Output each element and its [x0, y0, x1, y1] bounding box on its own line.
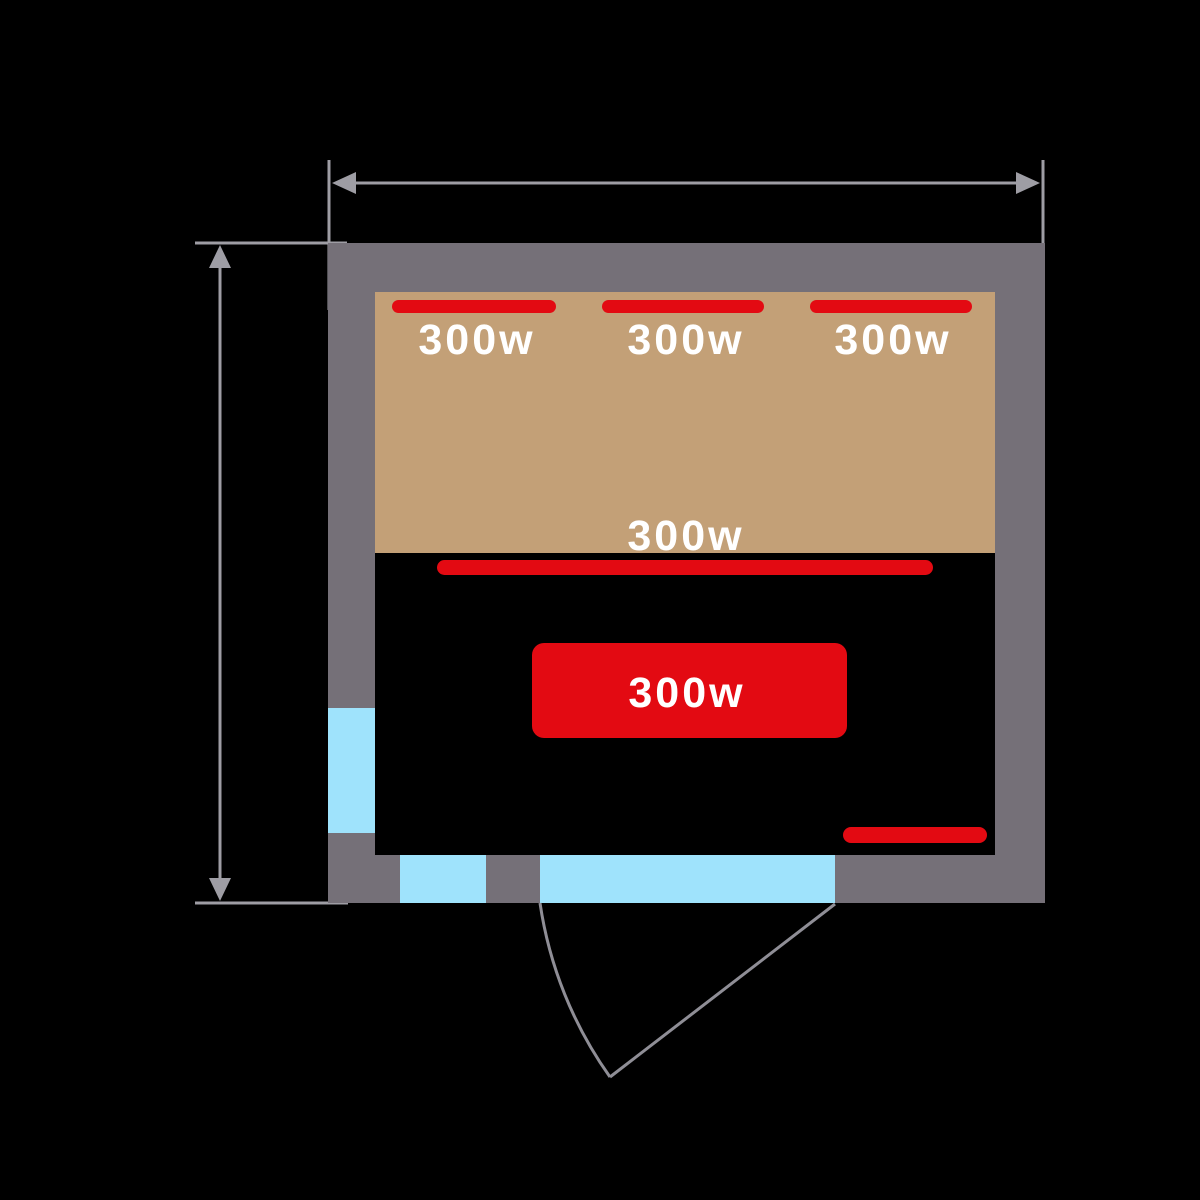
- glass-door: [540, 855, 835, 903]
- height-arrowhead-bottom-icon: [209, 878, 231, 901]
- bench-front-heater-bar: [437, 560, 933, 575]
- rear-heater-bar-2: [602, 300, 764, 313]
- wall-bottom-mid-segment: [486, 855, 540, 903]
- sauna-floorplan-diagram: 300w 300w 300w 300w 300w: [0, 0, 1200, 1200]
- floorplan-canvas: 300w 300w 300w 300w 300w: [0, 0, 1200, 1200]
- wall-top: [328, 243, 1045, 292]
- wall-bottom-right-segment: [835, 855, 1045, 903]
- wall-right: [995, 243, 1045, 903]
- wall-left-upper: [328, 243, 375, 708]
- door-open-panel-line: [610, 904, 835, 1077]
- width-arrowhead-right-icon: [1016, 172, 1040, 194]
- footrest-heater-bar: [843, 827, 987, 843]
- bench-front-heater-label: 300w: [627, 512, 744, 560]
- wall-bottom-left-corner: [328, 855, 400, 903]
- rear-heater-label-2: 300w: [627, 316, 744, 364]
- rear-heater-label-3: 300w: [834, 316, 951, 364]
- glass-window-bottom: [400, 855, 486, 903]
- rear-heater-bar-1: [392, 300, 556, 313]
- height-arrowhead-top-icon: [209, 245, 231, 268]
- rear-heater-label-1: 300w: [418, 316, 535, 364]
- floor-heater-label: 300w: [628, 669, 745, 717]
- width-arrowhead-left-icon: [332, 172, 356, 194]
- door-swing-arc: [540, 903, 610, 1077]
- rear-heater-bar-3: [810, 300, 972, 313]
- glass-window-left: [328, 708, 375, 833]
